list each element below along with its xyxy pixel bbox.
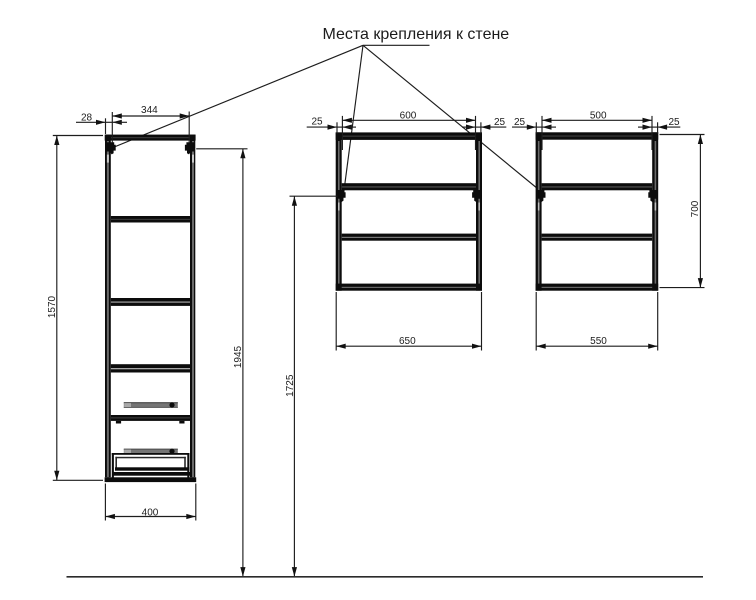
svg-text:28: 28 (81, 112, 93, 123)
svg-text:700: 700 (690, 200, 701, 217)
svg-text:25: 25 (514, 117, 526, 128)
svg-text:25: 25 (494, 117, 506, 128)
svg-text:550: 550 (590, 336, 607, 347)
svg-text:Места крепления к стене: Места крепления к стене (323, 26, 510, 43)
svg-text:25: 25 (311, 117, 323, 128)
svg-text:25: 25 (668, 117, 680, 128)
svg-text:344: 344 (141, 105, 158, 116)
svg-text:1945: 1945 (233, 345, 244, 368)
svg-text:500: 500 (590, 110, 607, 121)
svg-text:650: 650 (399, 336, 416, 347)
